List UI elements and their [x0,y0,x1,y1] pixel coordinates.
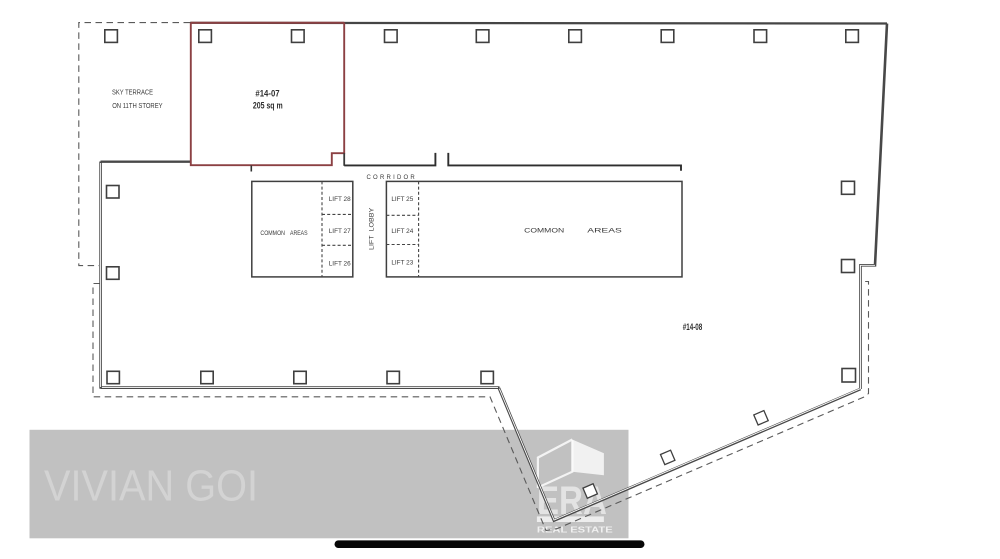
svg-text:AREAS: AREAS [290,230,308,237]
svg-text:SKY TERRACE: SKY TERRACE [112,90,153,97]
svg-text:VIVIAN GOI: VIVIAN GOI [44,463,258,511]
svg-text:AREAS: AREAS [587,228,622,235]
svg-text:#14-08: #14-08 [683,322,703,332]
svg-text:LIFT 26: LIFT 26 [329,261,351,268]
svg-text:LIFT LOBBY: LIFT LOBBY [369,207,376,250]
svg-text:LIFT 28: LIFT 28 [329,196,351,203]
svg-text:LIFT 25: LIFT 25 [391,196,413,203]
svg-text:ON 11TH STOREY: ON 11TH STOREY [112,103,163,110]
svg-text:COMMON: COMMON [260,230,285,237]
svg-text:CORRIDOR: CORRIDOR [367,174,418,181]
svg-text:205 sq m: 205 sq m [253,99,283,110]
svg-text:COMMON: COMMON [524,228,564,235]
svg-text:LIFT 27: LIFT 27 [329,228,351,235]
svg-text:LIFT 24: LIFT 24 [391,228,413,235]
svg-text:LIFT 23: LIFT 23 [391,260,413,267]
svg-text:#14-07: #14-07 [255,87,279,98]
